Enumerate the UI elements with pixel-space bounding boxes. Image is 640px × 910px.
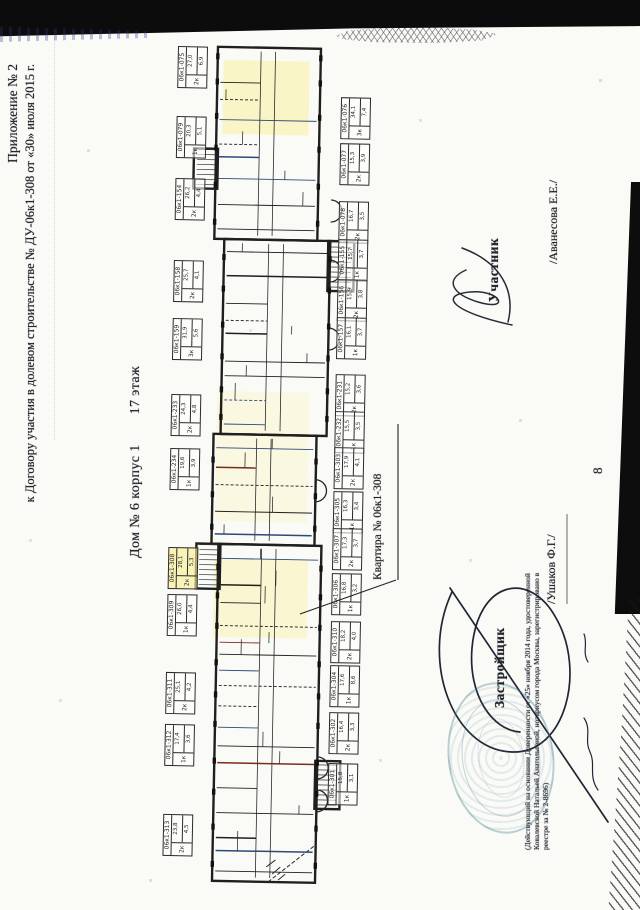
scanned-document-page: Приложение № 2 к Договору участия в доле…: [0, 0, 640, 910]
notary-note: (Действующий на основании Доверенности о…: [524, 568, 551, 850]
callout-leader-line: [300, 424, 398, 614]
rotated-landscape-page: Приложение № 2 к Договору участия в доле…: [0, 0, 640, 910]
page-number: 8: [590, 468, 606, 475]
developer-role-label: Застройщик: [492, 627, 508, 708]
fold-line: [54, 30, 55, 440]
participant-signature: [453, 248, 512, 325]
participant-name: /Аванесова Е.Е./: [546, 180, 561, 264]
participant-role-label: Участник: [486, 238, 502, 302]
scan-noise: [0, 0, 1, 1]
